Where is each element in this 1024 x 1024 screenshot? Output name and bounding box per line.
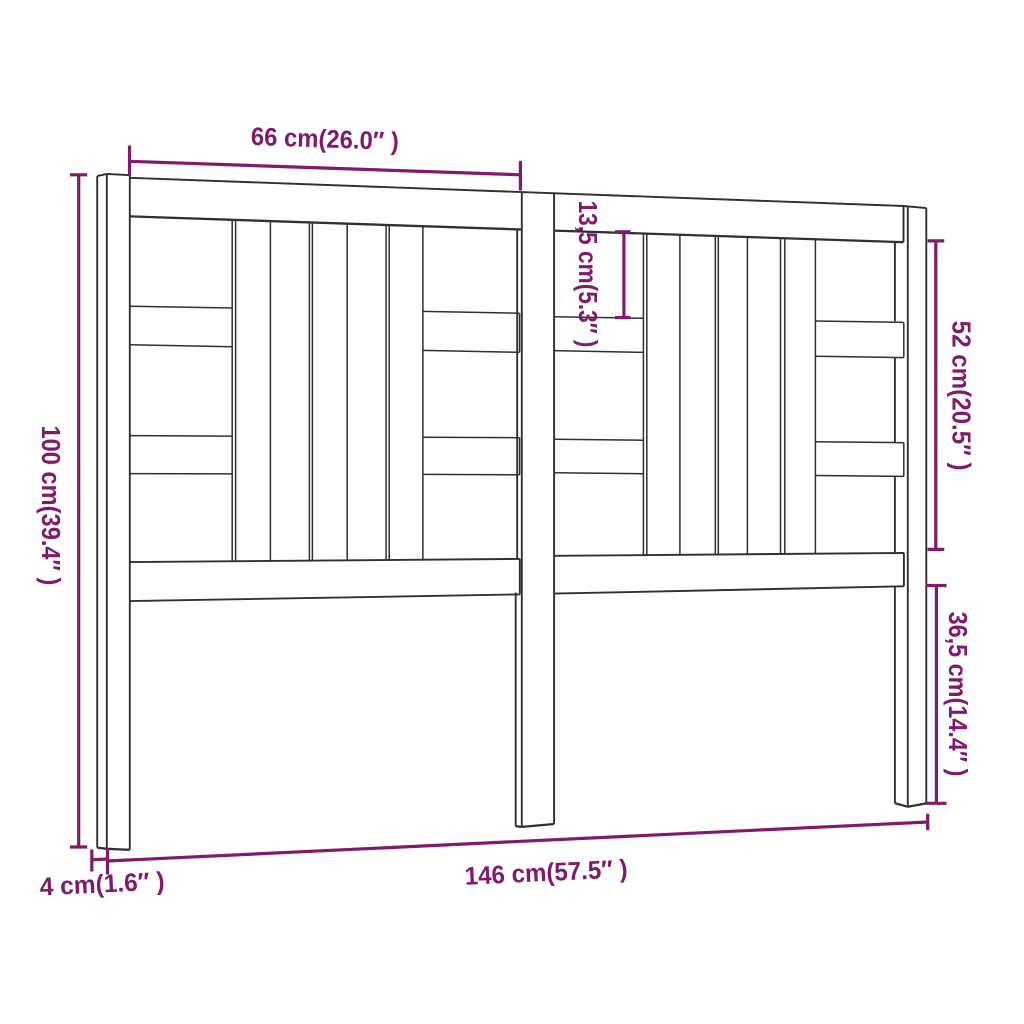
svg-text:36,5 cm(14.4″ ): 36,5 cm(14.4″ ): [943, 612, 971, 777]
svg-text:13,5 cm(5.3″ ): 13,5 cm(5.3″ ): [573, 201, 602, 348]
svg-text:66 cm(26.0″ ): 66 cm(26.0″ ): [250, 123, 399, 156]
svg-text:4 cm(1.6″ ): 4 cm(1.6″ ): [39, 867, 165, 901]
svg-text:52 cm(20.5″ ): 52 cm(20.5″ ): [946, 321, 974, 471]
svg-text:100 cm(39.4″ ): 100 cm(39.4″ ): [36, 425, 64, 585]
